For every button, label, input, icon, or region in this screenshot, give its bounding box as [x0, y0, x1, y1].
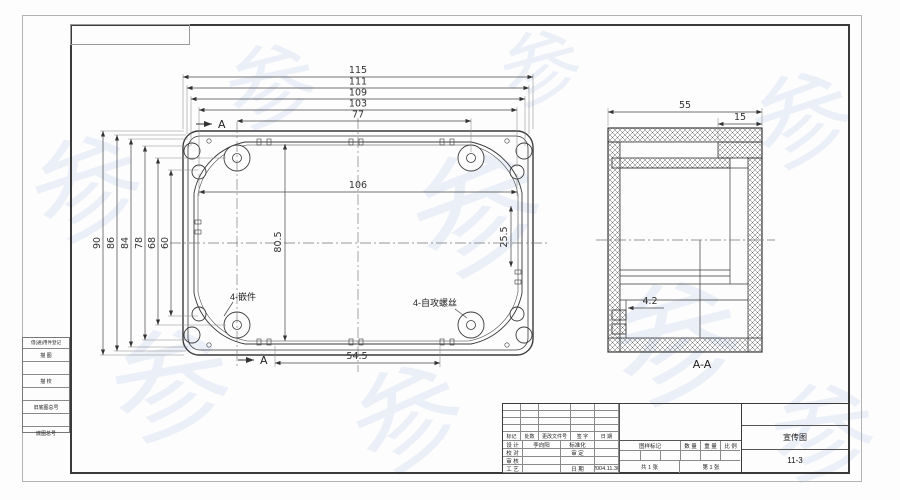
- dim-25-5: 25.5: [499, 226, 510, 247]
- section-label: A-A: [693, 358, 712, 371]
- title-block: 标记 处数 更改文件号 签 字 日 期 设 计 李向阳 标准化 校 对 审 定 …: [502, 403, 850, 474]
- dim-109: 109: [349, 88, 367, 99]
- roles-table: 设 计 李向阳 标准化 校 对 审 定 审 核 工 艺 日 期 2004.11.…: [503, 441, 619, 473]
- rev-header: 更改文件号: [539, 432, 571, 441]
- rev-header: 标记: [503, 432, 521, 441]
- dim-78: 78: [134, 237, 145, 249]
- stamp-header: 比 例: [721, 441, 740, 451]
- role-label: 日 期: [561, 465, 595, 473]
- role-label: 工 艺: [503, 465, 523, 473]
- role-label: 审 核: [503, 457, 523, 465]
- dim-80-5: 80.5: [273, 231, 284, 252]
- drawing-sheet: 参 参 参 参 参 参 参 参 参 借(通)用件登记 描 图 描 校 旧底图总号…: [0, 0, 900, 500]
- title-column: 宣传图 11-3: [741, 404, 848, 472]
- dim-60: 60: [160, 237, 171, 249]
- drawing-number: 11-3: [742, 450, 848, 470]
- label-insert: 4-嵌件: [230, 291, 256, 302]
- section-view: [596, 128, 775, 352]
- role-label: [561, 457, 595, 465]
- dim-77: 77: [352, 110, 364, 121]
- dim-54-5: 54.5: [346, 351, 367, 362]
- dim-15: 15: [734, 112, 746, 123]
- dim-4-2: 4.2: [642, 296, 657, 307]
- dim-115: 115: [349, 65, 367, 76]
- plan-view: [170, 118, 548, 372]
- stamp-header: 图样标记: [620, 441, 681, 451]
- role-name: 李向阳: [523, 441, 561, 449]
- revision-table: 标记 处数 更改文件号 签 字 日 期: [503, 404, 619, 441]
- stamp-empty-cell: [619, 404, 741, 441]
- role-label: 设 计: [503, 441, 523, 449]
- dim-86: 86: [106, 237, 117, 249]
- role-label: 校 对: [503, 449, 523, 457]
- stamp-header: 重 量: [701, 441, 721, 451]
- rev-header: 处数: [521, 432, 539, 441]
- company-cell: [742, 404, 848, 426]
- role-label: 审 定: [561, 449, 595, 457]
- dim-103: 103: [349, 99, 367, 110]
- sheet-total: 共 1 张: [620, 461, 680, 473]
- rev-header: 签 字: [571, 432, 595, 441]
- role-label: 标准化: [561, 441, 595, 449]
- sheet-number: 第 1 张: [680, 461, 742, 473]
- drawing-title: 宣传图: [742, 426, 848, 450]
- stamp-area: 图样标记 数 量 重 量 比 例 共 1 张 第 1 张: [619, 441, 741, 473]
- stamp-header: 数 量: [681, 441, 701, 451]
- dim-106: 106: [349, 180, 367, 191]
- role-date: 2004.11.30: [595, 465, 619, 473]
- section-marker-top: A: [218, 118, 226, 131]
- dim-111: 111: [349, 77, 367, 88]
- section-marker-bottom: A: [260, 354, 268, 367]
- screw-bosses: [224, 145, 484, 338]
- dim-55: 55: [679, 100, 691, 111]
- rev-header: 日 期: [595, 432, 619, 441]
- dim-84: 84: [120, 237, 131, 249]
- dim-90: 90: [92, 237, 103, 249]
- label-self-tapping-screw: 4-自攻螺丝: [413, 297, 457, 308]
- dim-68: 68: [147, 237, 158, 249]
